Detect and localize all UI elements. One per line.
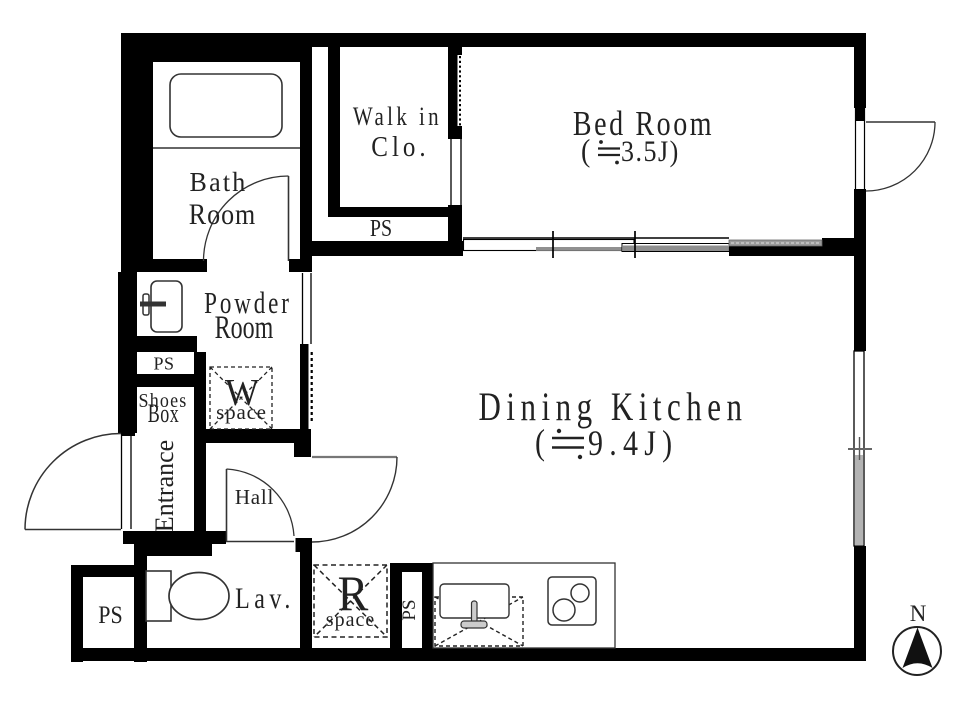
svg-text:Walk in: Walk in	[353, 103, 442, 132]
svg-text:Dining Kitchen: Dining Kitchen	[479, 384, 748, 429]
svg-text:PS: PS	[370, 214, 392, 241]
svg-text:N: N	[910, 601, 927, 626]
svg-text:Hall: Hall	[235, 485, 274, 509]
svg-text:Clo.: Clo.	[371, 130, 429, 162]
svg-text:Lav.: Lav.	[235, 581, 295, 614]
svg-text:(: (	[581, 132, 590, 168]
svg-text:(: (	[535, 422, 545, 462]
svg-text:PS: PS	[153, 354, 174, 374]
svg-text:space: space	[326, 609, 375, 631]
svg-text:space: space	[216, 400, 267, 424]
svg-text:PS: PS	[98, 602, 122, 630]
svg-text:Entrance: Entrance	[150, 440, 179, 532]
svg-text:Bath: Bath	[190, 166, 248, 197]
svg-text:3.5J): 3.5J)	[621, 135, 680, 168]
svg-text:Room: Room	[215, 311, 274, 346]
svg-text:PS: PS	[399, 599, 420, 620]
svg-text:9.4J): 9.4J)	[588, 423, 678, 463]
svg-text:Room: Room	[189, 198, 257, 231]
svg-text:Box: Box	[148, 399, 180, 428]
